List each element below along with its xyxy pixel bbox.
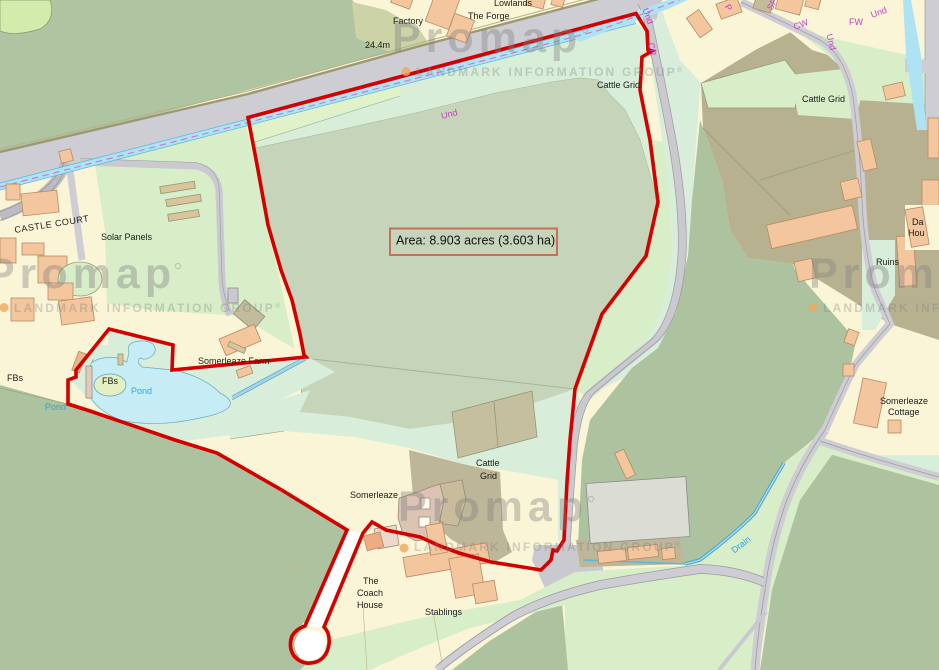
svg-text:LANDMARK INFORMATION GROUP®: LANDMARK INFORMATION GROUP®	[14, 301, 282, 315]
svg-text:House: House	[357, 600, 383, 610]
svg-text:Stablings: Stablings	[425, 607, 463, 617]
svg-text:The: The	[363, 576, 379, 586]
svg-text:Somerleaze Farm: Somerleaze Farm	[198, 356, 270, 366]
svg-text:Promap: Promap	[392, 14, 582, 62]
svg-text:FBs: FBs	[7, 373, 24, 383]
svg-text:Coach: Coach	[357, 588, 383, 598]
svg-text:Cattle Grid: Cattle Grid	[802, 94, 845, 104]
svg-text:LANDMARK INFORMATION GROUP®: LANDMARK INFORMATION GROUP®	[414, 540, 682, 554]
svg-text:24.4m: 24.4m	[365, 40, 390, 50]
svg-text:Area: 8.903 acres (3.603 ha): Area: 8.903 acres (3.603 ha)	[396, 234, 555, 248]
svg-text:Promap: Promap	[398, 483, 588, 531]
svg-text:Somerleaze: Somerleaze	[350, 490, 398, 500]
svg-text:Cattle Grid: Cattle Grid	[597, 80, 640, 90]
svg-text:Cottage: Cottage	[888, 407, 920, 417]
svg-text:LANDMARK INFORMATION GROUP®: LANDMARK INFORMATION GROUP®	[416, 65, 684, 79]
svg-text:Somerleaze: Somerleaze	[880, 396, 928, 406]
svg-text:Pond: Pond	[131, 386, 152, 396]
svg-text:Lowlands: Lowlands	[494, 0, 533, 8]
svg-text:Pond: Pond	[45, 402, 66, 412]
svg-text:Hou: Hou	[908, 228, 925, 238]
svg-text:Da: Da	[912, 217, 924, 227]
svg-text:Cattle: Cattle	[476, 458, 500, 468]
svg-text:Solar Panels: Solar Panels	[101, 232, 153, 242]
svg-text:Promap: Promap	[809, 250, 939, 298]
svg-text:LANDMARK INFORMATION GROUP®: LANDMARK INFORMATION GROUP®	[823, 301, 939, 315]
svg-text:Grid: Grid	[480, 471, 497, 481]
svg-text:FW: FW	[849, 17, 863, 27]
svg-text:Promap: Promap	[0, 250, 176, 298]
svg-text:FBs: FBs	[102, 376, 119, 386]
